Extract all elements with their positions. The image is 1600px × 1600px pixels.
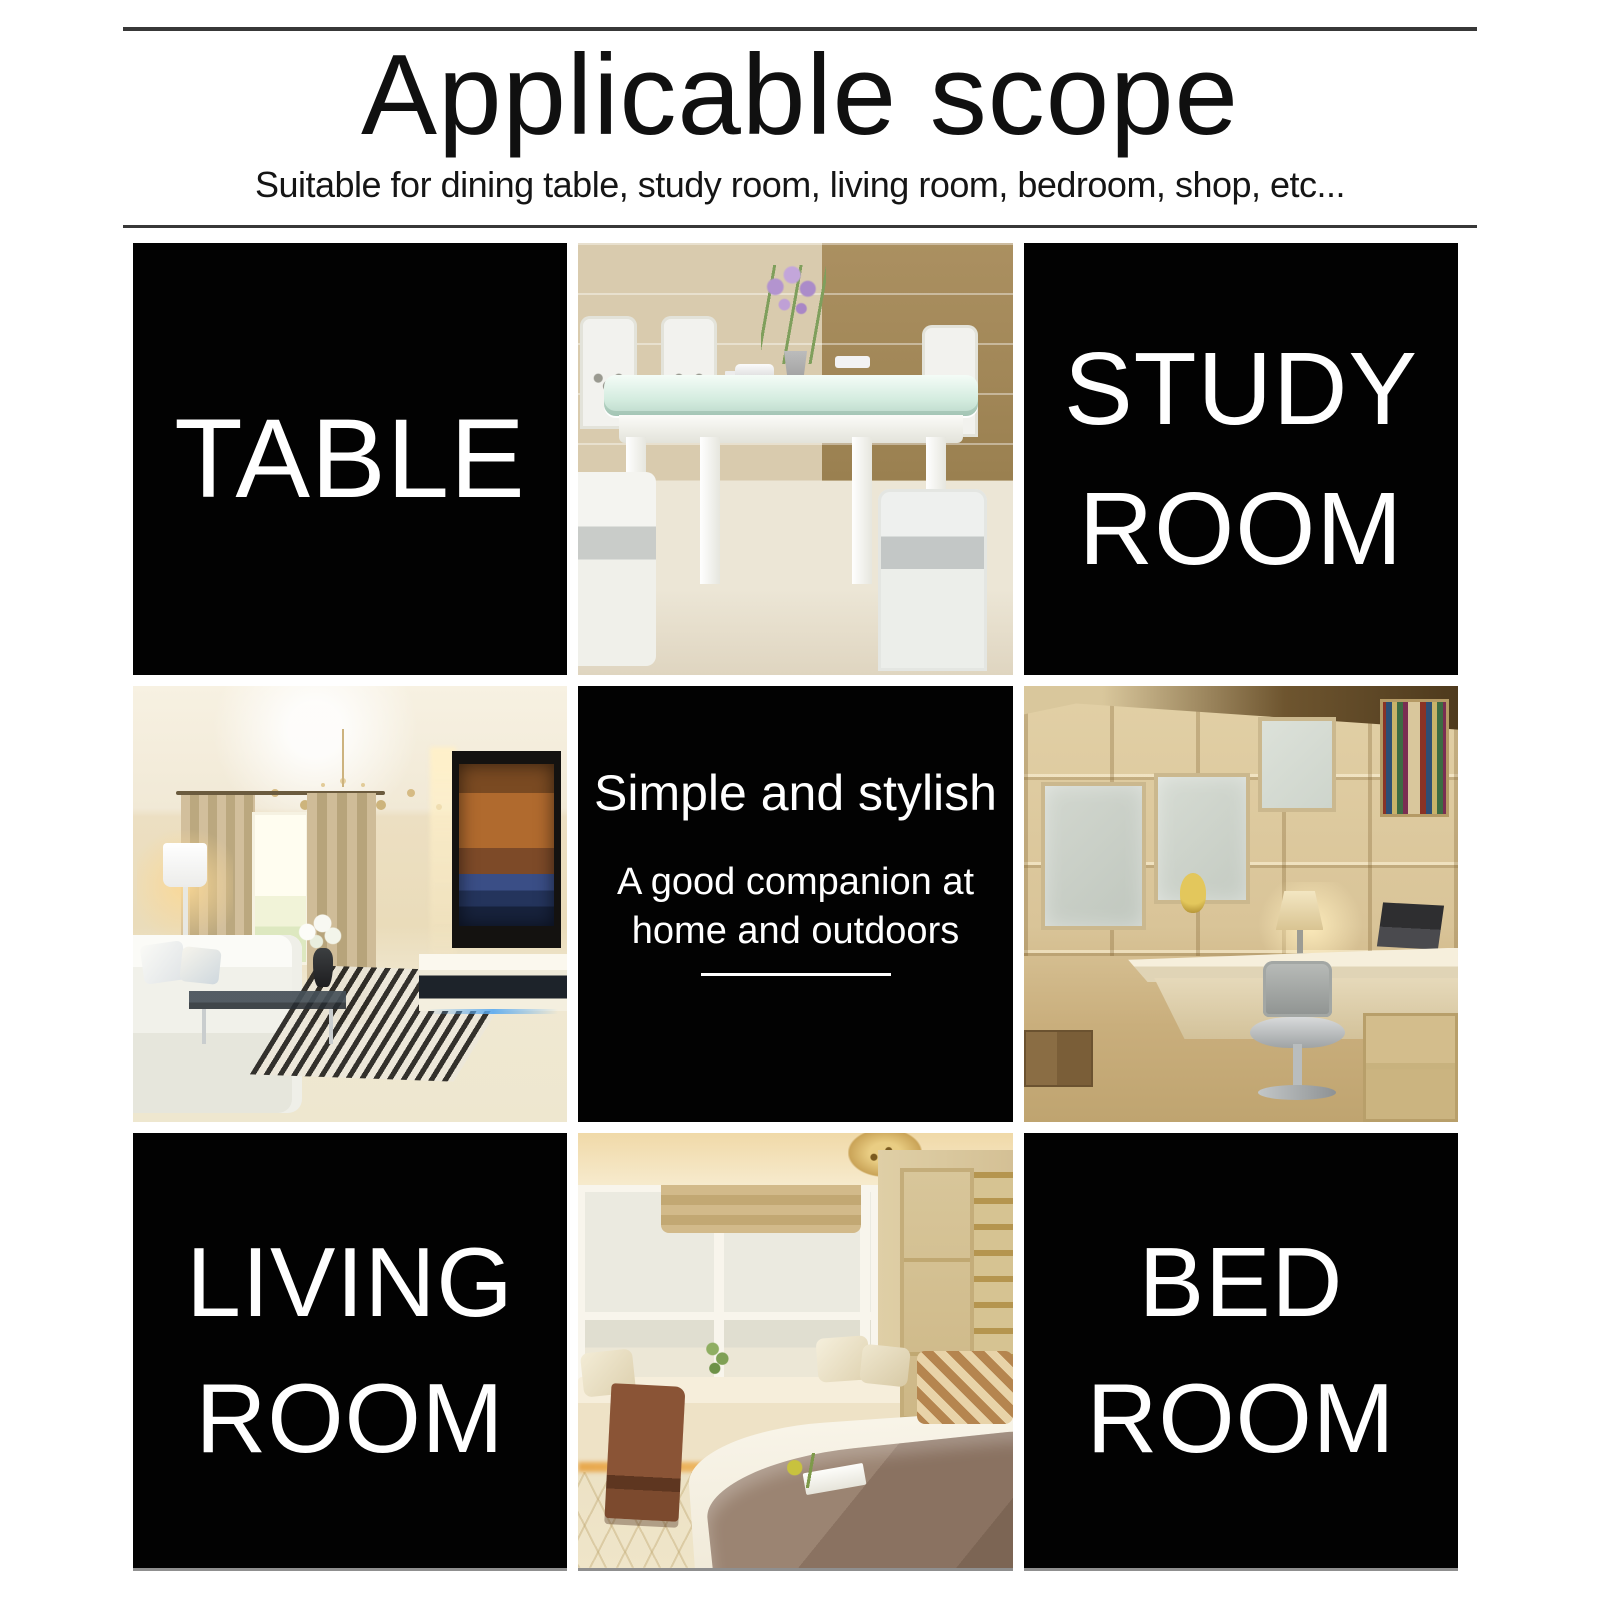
table-apron [619, 415, 963, 443]
tile-bed-room: BED ROOM [1024, 1133, 1458, 1568]
living-room-photo [133, 686, 567, 1122]
tagline-subtext: A good companion at home and outdoors [617, 858, 974, 957]
bookshelf-books [1380, 699, 1449, 817]
tile-table: TABLE [133, 243, 567, 675]
tagline-underline [701, 973, 891, 976]
table-leg [852, 437, 872, 584]
shelf-ornament [1180, 873, 1206, 912]
coffee-table [189, 991, 345, 1048]
tile-bed-room-line2: ROOM [1087, 1351, 1396, 1486]
dining-chair-front [878, 489, 987, 670]
roman-shade [661, 1185, 861, 1233]
office-chair-base [1258, 1085, 1336, 1100]
floor-vase [313, 948, 333, 987]
floor-lamp-shade [163, 843, 206, 887]
frosted-cabinet-door [1258, 717, 1336, 813]
tile-study-room-line1: STUDY [1064, 319, 1418, 459]
drawer-unit [1363, 1013, 1458, 1122]
page-subtitle: Suitable for dining table, study room, l… [0, 164, 1600, 206]
study-room-photo [1024, 686, 1458, 1122]
office-chair-back [1263, 961, 1332, 1018]
tile-bed-room-line1: BED [1139, 1215, 1344, 1350]
tile-tagline: Simple and stylish A good companion at h… [578, 686, 1013, 1122]
dining-table-photo [578, 243, 1013, 675]
tulip-bouquet [761, 265, 826, 364]
tagline-subtext-line2: home and outdoors [617, 907, 974, 956]
storage-boxes [1024, 1030, 1093, 1087]
page-title: Applicable scope [0, 30, 1600, 161]
frosted-cabinet-door [1041, 782, 1145, 930]
glass-table-top [604, 375, 978, 416]
tv-screen [459, 764, 554, 925]
tile-table-label: TABLE [174, 397, 526, 520]
bench-pillow [859, 1344, 911, 1388]
brown-throw [605, 1383, 686, 1522]
tile-living-room: LIVING ROOM [133, 1133, 567, 1568]
tile-study-room-line2: ROOM [1079, 459, 1403, 599]
tile-study-room: STUDY ROOM [1024, 243, 1458, 675]
tv-cabinet [419, 954, 567, 1011]
patterned-pillow [917, 1351, 1013, 1425]
laptop [1377, 902, 1444, 949]
flower-on-bed [787, 1453, 835, 1488]
table-leg [700, 437, 720, 584]
cabinet-led-strip [428, 1009, 558, 1014]
tile-living-room-line1: LIVING [186, 1215, 513, 1350]
header-divider-line [123, 225, 1477, 228]
tagline-heading: Simple and stylish [594, 764, 997, 822]
office-chair-pole [1293, 1044, 1302, 1088]
tile-living-room-line2: ROOM [196, 1351, 505, 1486]
tagline-subtext-line1: A good companion at [617, 858, 974, 907]
sofa-pillow [179, 946, 221, 985]
scope-grid: TABLE STUDY ROOM [133, 243, 1458, 1568]
dining-chair-front [578, 472, 656, 666]
bedroom-photo [578, 1133, 1013, 1568]
